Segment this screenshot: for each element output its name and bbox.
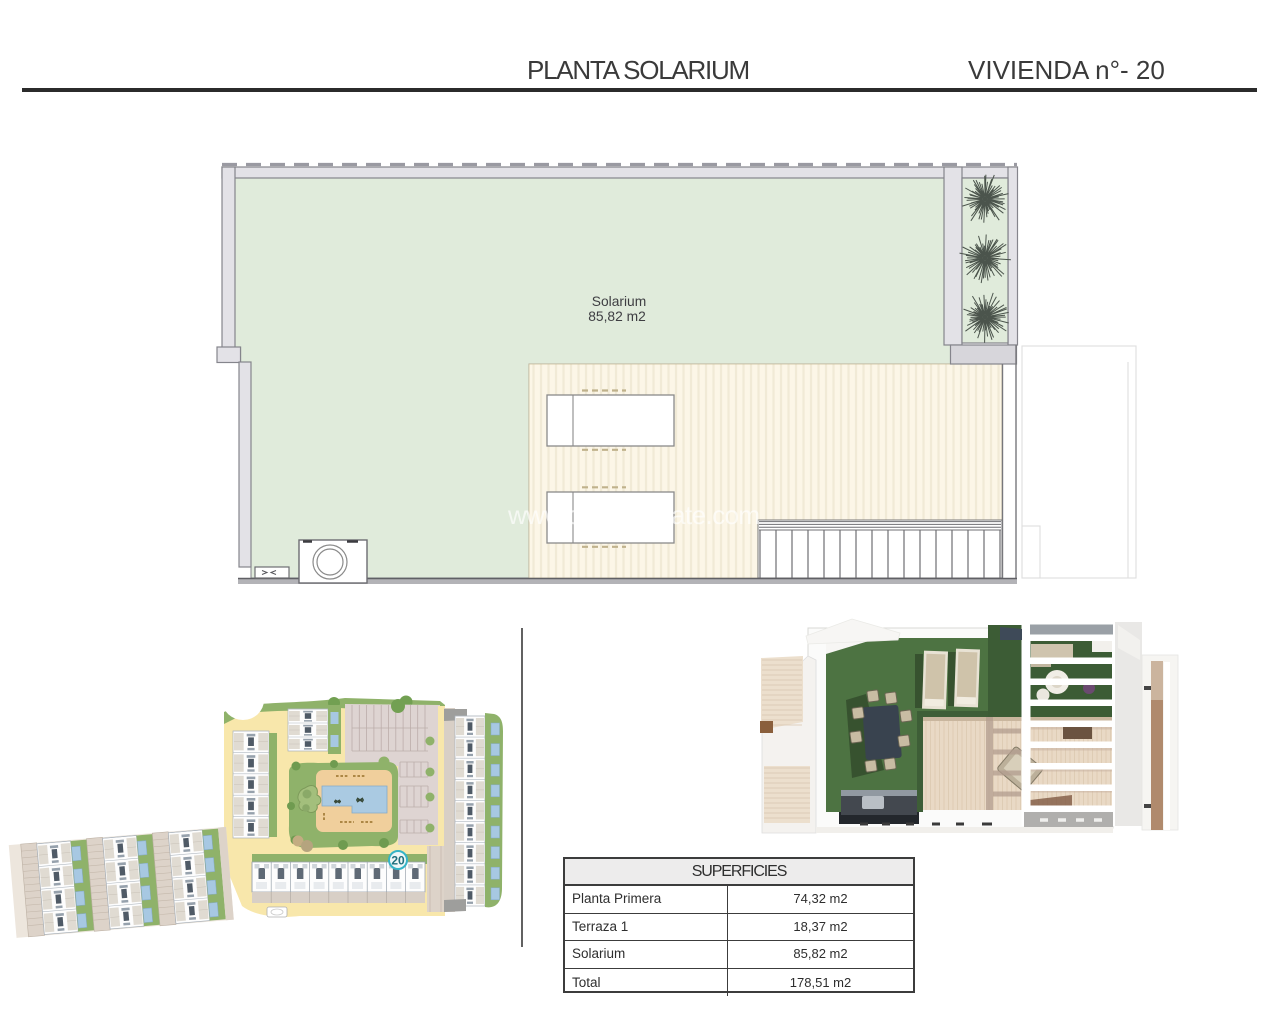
svg-text:85,82 m2: 85,82 m2 [588,309,646,324]
svg-text:www.dreamestate.com: www.dreamestate.com [507,500,760,530]
svg-text:20: 20 [391,854,405,868]
svg-text:Solarium: Solarium [592,294,646,309]
